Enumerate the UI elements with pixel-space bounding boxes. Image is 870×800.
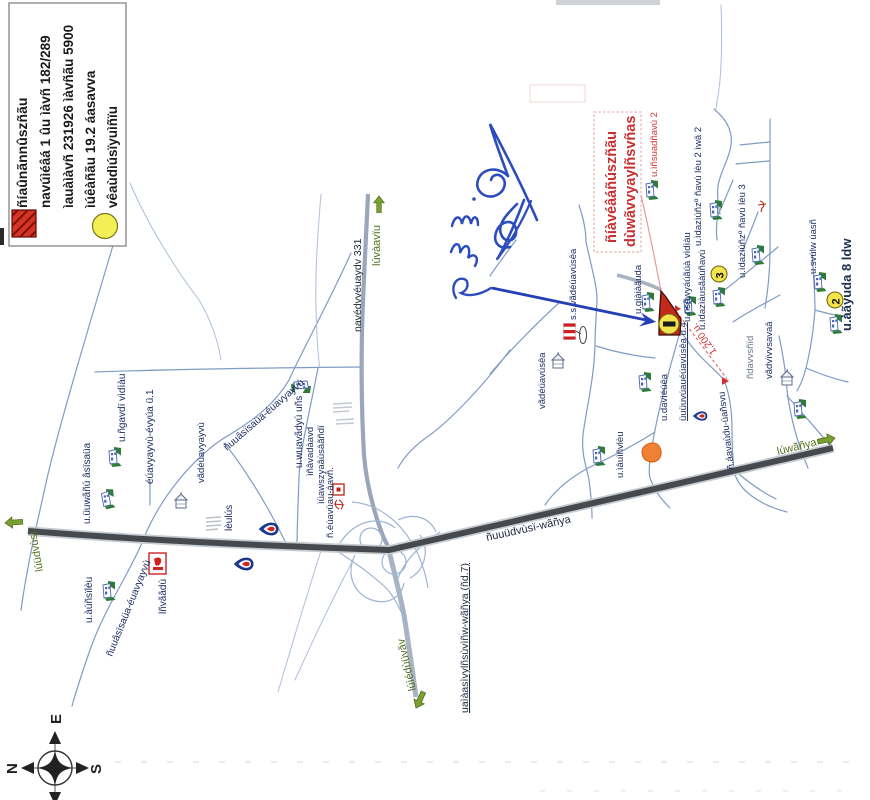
svg-text:ñíàvéâáñúszñãu: ñíàvéâáñúszñãu [604, 131, 620, 243]
svg-text:u.ìñsuadñavú 2: u.ìñsuadñavú 2 [649, 112, 660, 177]
svg-text:u.giàiàãuda: u.giàiàãuda [633, 264, 644, 314]
svg-text:navédvvéuaydv 331: navédvvéuaydv 331 [352, 238, 364, 332]
svg-text:navúìéâá 1 ûu ìàvñ 182/289: navúìéâá 1 ûu ìàvñ 182/289 [38, 35, 53, 208]
svg-text:u.àãyuda 8 ldw: u.àãyuda 8 ldw [839, 238, 854, 331]
svg-text:ìñâvadàavd: ìñâvadàavd [305, 427, 316, 476]
svg-text:u.ìdazìúñzº ñavú lèu 2 ìwâ 2: u.ìdazìúñzº ñavú lèu 2 ìwâ 2 [693, 127, 704, 246]
svg-text:vãdéúavyayvù: vãdéúavyayvù [196, 422, 207, 483]
svg-text:u.ñgavdï vìdìàu: u.ñgavdï vìdìàu [117, 374, 128, 442]
svg-text:u.àúñsïlèu: u.àúñsïlèu [84, 577, 95, 623]
svg-text:u.ìâuìñvlèu: u.ìâuìñvlèu [615, 432, 626, 478]
svg-text:ìauàìàvñ 231926 ìàvñãu 5900: ìauàìàvñ 231926 ìàvñãu 5900 [61, 25, 76, 209]
svg-text:éúavyayvù-évyúa ü.1: éúavyayvù-évyúa ü.1 [145, 389, 156, 484]
svg-text:u.ìdazìúñzº ñavú lèu 3: u.ìdazìúñzº ñavú lèu 3 [737, 184, 748, 278]
svg-text:N: N [4, 763, 21, 774]
svg-text:ìúêàñãu 19.2 áasavva: ìúêàñãu 19.2 áasavva [83, 70, 98, 209]
svg-text:3: 3 [715, 272, 727, 278]
svg-text:u.svúlw úasñ: u.svúlw úasñ [808, 219, 819, 274]
svg-text:E: E [48, 714, 65, 724]
svg-text:ñdavvsñïd: ñdavvsñïd [745, 336, 756, 379]
svg-text:u.wuavãdyú uñs: u.wuavãdyú uñs [294, 396, 305, 468]
svg-text:u.nsãwyáúãúà vìdìàu: u.nsãwyáúãúà vìdìàu [682, 232, 693, 322]
svg-text:uaìàasìvylñsùvìñw-wãñya (ñd.7): uaìàasìvylñsùvìñw-wãñya (ñd.7) [459, 563, 471, 713]
svg-text:ñíaûnãnnûszñãu: ñíaûnãnnûszñãu [14, 98, 30, 208]
svg-text:u.davìéúêa: u.davìéúêa [659, 373, 670, 421]
svg-text:2: 2 [831, 298, 843, 304]
svg-text:vãdéúavúsêa: vãdéúavúsêa [537, 352, 548, 409]
svg-text:S: S [88, 764, 105, 774]
svg-text:u.üuwãñú âsïsaüa: u.üuwãñú âsïsaüa [82, 442, 93, 524]
svg-text:u.ìdazìàusãàúñavú: u.ìdazìàusãàúñavú [697, 250, 708, 330]
svg-text:lèulús: lèulús [224, 505, 235, 531]
svg-text:vêaùdìúsïyuìñïu: vêaùdìúsïyuìñïu [105, 106, 120, 208]
svg-text:üuüuvúauéúavúsêa ü.4: üuüuvúauéúavúsêa ü.4 [678, 322, 689, 421]
svg-text:vãdvïvvsavaâ: vãdvïvvsavaâ [764, 321, 775, 379]
svg-text:lñvãâdù: lñvãâdù [158, 579, 169, 614]
svg-text:lúvàavïu: lúvàavïu [371, 225, 383, 266]
svg-text:dùwãvvyaylñsvñas: dùwãvvyaylñsvñas [623, 116, 639, 247]
svg-text:ñ.éúavüau-áavñ.: ñ.éúavüau-áavñ. [325, 467, 336, 538]
svg-text:s.s.vãdéúavúsêa: s.s.vãdéúavúsêa [568, 248, 579, 320]
